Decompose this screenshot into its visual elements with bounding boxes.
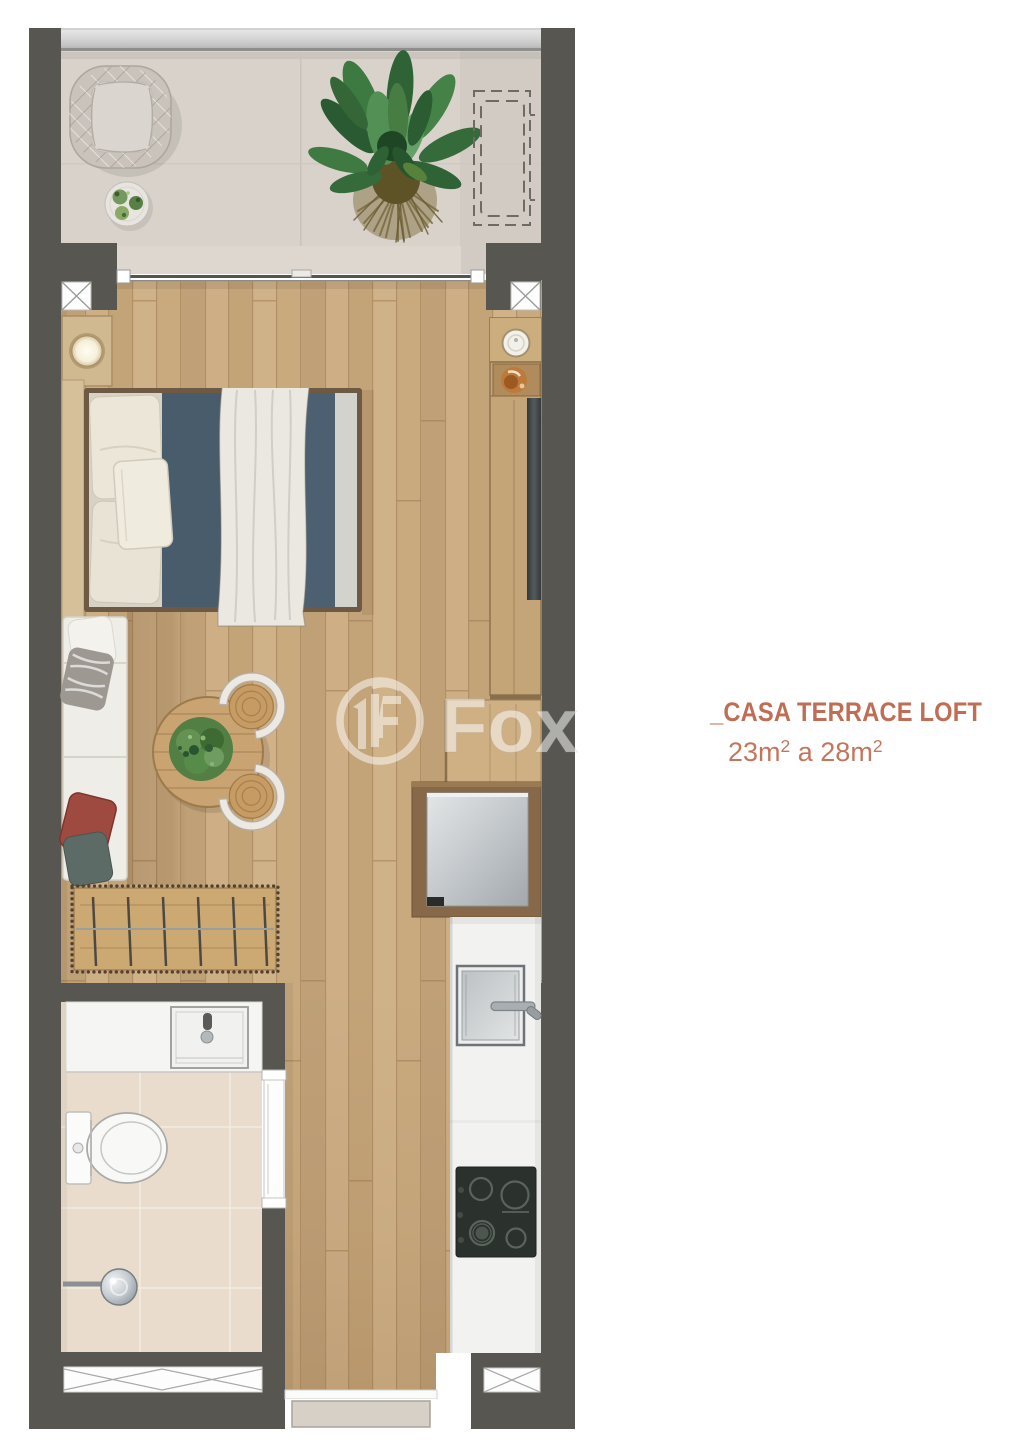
svg-text:_CASA TERRACE LOFT: _CASA TERRACE LOFT bbox=[709, 697, 982, 727]
svg-text:23m2 a 28m2: 23m2 a 28m2 bbox=[728, 736, 883, 767]
svg-text:Fox: Fox bbox=[440, 683, 578, 769]
